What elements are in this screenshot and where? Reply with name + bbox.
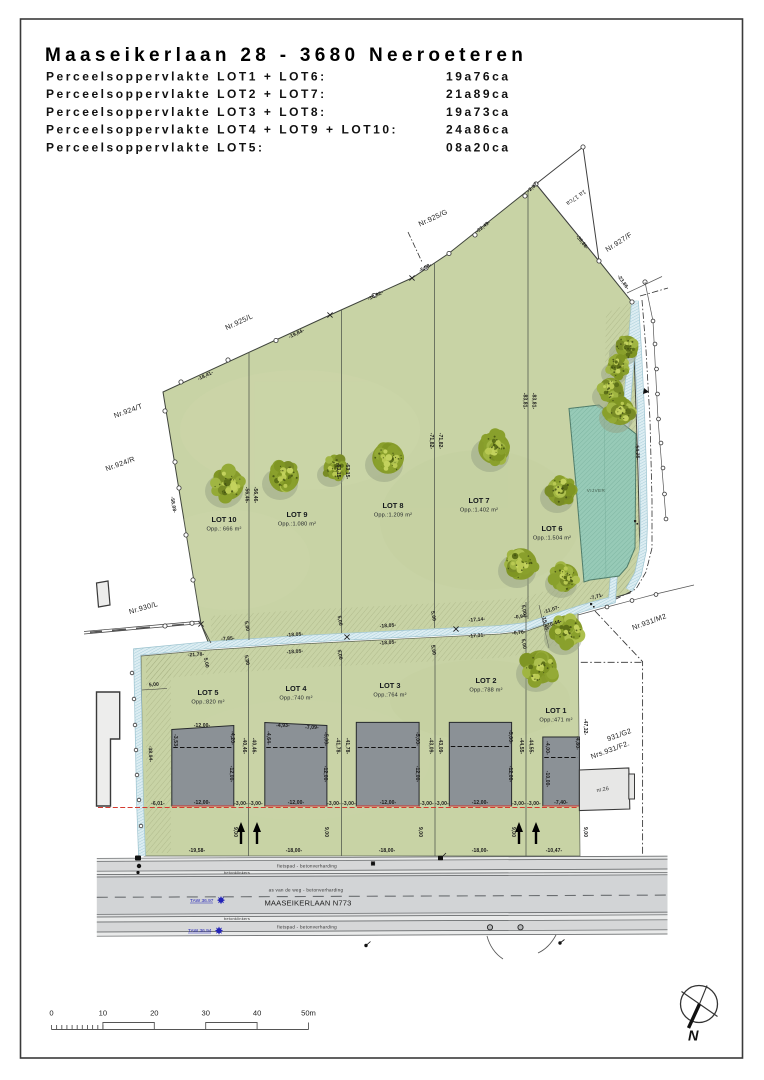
svg-text:-12,00-: -12,00-: [194, 800, 211, 806]
svg-text:-17,14-: -17,14-: [468, 616, 485, 623]
svg-text:LOT 4: LOT 4: [286, 684, 308, 693]
svg-text:-4,64-: -4,64-: [265, 731, 271, 745]
svg-text:-41,78-: -41,78-: [344, 738, 350, 755]
svg-text:Perceelsoppervlakte LOT2 + LOT: Perceelsoppervlakte LOT2 + LOT7:: [46, 87, 327, 101]
svg-text:-5,00-: -5,00-: [323, 732, 329, 746]
svg-text:-17,31-: -17,31-: [468, 632, 485, 639]
svg-text:-12,00-: -12,00-: [472, 800, 489, 806]
svg-text:-5,00-: -5,00-: [414, 732, 420, 746]
svg-text:-56,46-: -56,46-: [244, 487, 250, 504]
svg-text:Opp.:764 m²: Opp.:764 m²: [373, 692, 406, 698]
svg-text:5,00: 5,00: [149, 682, 160, 689]
svg-text:-3,00-: -3,00-: [512, 801, 526, 807]
svg-text:Opp.:1.080 m²: Opp.:1.080 m²: [278, 521, 316, 527]
svg-text:Perceelsoppervlakte LOT1 + LOT: Perceelsoppervlakte LOT1 + LOT6:: [46, 70, 327, 84]
svg-text:-6,01-: -6,01-: [151, 801, 165, 807]
svg-text:-18,05-: -18,05-: [379, 622, 396, 629]
svg-text:24a86ca: 24a86ca: [446, 123, 511, 137]
svg-text:-10,00-: -10,00-: [544, 771, 550, 788]
svg-text:-12,00-: -12,00-: [194, 723, 211, 729]
svg-text:Opp.: 666 m²: Opp.: 666 m²: [206, 526, 241, 532]
svg-text:08a20ca: 08a20ca: [446, 140, 511, 154]
svg-text:-7,85-: -7,85-: [221, 636, 235, 643]
svg-text:9,00: 9,00: [510, 827, 516, 837]
svg-text:-12,00-: -12,00-: [507, 766, 513, 783]
svg-text:LOT 2: LOT 2: [476, 676, 497, 685]
svg-text:N: N: [688, 1029, 699, 1045]
svg-text:-63,15-: -63,15-: [335, 463, 341, 480]
svg-text:VIJVER: VIJVER: [587, 488, 606, 493]
svg-text:-12,00-: -12,00-: [228, 766, 234, 783]
svg-text:Perceelsoppervlakte LOT4 + LOT: Perceelsoppervlakte LOT4 + LOT9 + LOT10:: [46, 123, 398, 137]
svg-text:-12,00-: -12,00-: [322, 766, 328, 783]
svg-text:20: 20: [150, 1009, 158, 1018]
svg-text:-3,00-: -3,00-: [527, 801, 541, 807]
svg-text:-3,00-: -3,00-: [435, 801, 449, 807]
svg-text:-43,09-: -43,09-: [428, 738, 434, 755]
svg-text:-40,46-: -40,46-: [251, 738, 257, 755]
svg-text:Opp.:740 m²: Opp.:740 m²: [279, 695, 312, 701]
svg-text:Opp.:471 m²: Opp.:471 m²: [539, 717, 572, 723]
svg-text:-47,32-: -47,32-: [582, 719, 588, 736]
svg-text:9,00: 9,00: [417, 827, 423, 837]
svg-text:LOT 10: LOT 10: [211, 515, 236, 524]
svg-text:LOT 9: LOT 9: [287, 510, 308, 519]
svg-text:-44,55-: -44,55-: [518, 738, 524, 755]
svg-text:-18,05-: -18,05-: [379, 639, 396, 646]
svg-text:-41,78-: -41,78-: [335, 738, 341, 755]
svg-text:-18,05-: -18,05-: [286, 631, 303, 638]
svg-text:Perceelsoppervlakte LOT3 + LOT: Perceelsoppervlakte LOT3 + LOT8:: [46, 105, 327, 119]
svg-text:-44,55-: -44,55-: [528, 738, 534, 755]
svg-text:Opp.:788 m²: Opp.:788 m²: [469, 687, 502, 693]
svg-text:9,00: 9,00: [323, 827, 329, 837]
svg-text:40: 40: [253, 1009, 261, 1018]
svg-text:-5,00-: -5,00-: [507, 730, 513, 744]
svg-text:-12,00-: -12,00-: [380, 800, 397, 806]
svg-text:betonklinkers: betonklinkers: [224, 870, 250, 875]
svg-text:-83,81-: -83,81-: [531, 393, 537, 410]
svg-text:-18,00-: -18,00-: [379, 848, 396, 854]
svg-text:-3,00-: -3,00-: [249, 801, 263, 807]
svg-text:Perceelsoppervlakte LOT5:: Perceelsoppervlakte LOT5:: [46, 140, 264, 154]
svg-text:Maaseikerlaan 28 - 3680 Neeroe: Maaseikerlaan 28 - 3680 Neeroeteren: [45, 45, 527, 66]
svg-text:-12,00-: -12,00-: [414, 766, 420, 783]
svg-text:LOT 5: LOT 5: [198, 688, 219, 697]
svg-text:LOT 1: LOT 1: [546, 706, 567, 715]
svg-text:-3,00-: -3,00-: [327, 801, 341, 807]
svg-text:betonklinkers: betonklinkers: [224, 916, 250, 921]
svg-text:Opp.:1.402 m²: Opp.:1.402 m²: [460, 507, 498, 513]
svg-text:as van de weg - betonverhardin: as van de weg - betonverharding: [269, 888, 344, 893]
svg-text:-7,40-: -7,40-: [554, 800, 568, 806]
svg-text:-56,46-: -56,46-: [252, 487, 258, 504]
svg-text:-71,82-: -71,82-: [437, 433, 443, 450]
svg-text:-19,58-: -19,58-: [189, 848, 206, 854]
svg-text:-18,00-: -18,00-: [286, 848, 303, 854]
svg-text:50m: 50m: [301, 1009, 316, 1018]
svg-text:-63,15-: -63,15-: [344, 463, 350, 480]
svg-text:fietspad - betonverharding: fietspad - betonverharding: [277, 863, 337, 868]
svg-text:-3,00-: -3,00-: [420, 801, 434, 807]
svg-text:-4,20-: -4,20-: [229, 731, 235, 745]
svg-text:0: 0: [49, 1009, 53, 1018]
svg-text:-3,53-: -3,53-: [172, 734, 178, 748]
svg-text:-4,80-: -4,80-: [574, 736, 580, 750]
svg-text:LOT 6: LOT 6: [542, 524, 563, 533]
svg-text:-7,09-: -7,09-: [305, 725, 319, 731]
svg-text:30: 30: [201, 1009, 209, 1018]
svg-text:-54,25-: -54,25-: [634, 444, 641, 461]
svg-text:LOT 3: LOT 3: [380, 681, 401, 690]
svg-text:-18,00-: -18,00-: [472, 848, 489, 854]
svg-text:-43,09-: -43,09-: [437, 738, 443, 755]
svg-text:21a89ca: 21a89ca: [446, 87, 511, 101]
svg-text:-83,81-: -83,81-: [522, 393, 528, 410]
svg-text:-12,00-: -12,00-: [288, 800, 305, 806]
svg-text:LOT 7: LOT 7: [469, 496, 490, 505]
svg-text:Opp.:1.209 m²: Opp.:1.209 m²: [374, 512, 412, 518]
svg-text:-3,00-: -3,00-: [234, 801, 248, 807]
svg-text:-10,47-: -10,47-: [546, 848, 563, 854]
svg-text:9,00: 9,00: [232, 827, 238, 837]
svg-text:-4,93-: -4,93-: [276, 723, 290, 729]
svg-text:-40,46-: -40,46-: [241, 738, 247, 755]
svg-text:-38,94-: -38,94-: [147, 746, 154, 763]
svg-text:19a73ca: 19a73ca: [446, 105, 511, 119]
svg-text:10: 10: [99, 1009, 107, 1018]
svg-text:Opp.:1.504 m²: Opp.:1.504 m²: [533, 535, 571, 541]
svg-text:9,00: 9,00: [582, 827, 588, 837]
svg-text:MAASEIKERLAAN N773: MAASEIKERLAAN N773: [264, 899, 351, 908]
svg-text:LOT 8: LOT 8: [383, 501, 404, 510]
svg-text:19a76ca: 19a76ca: [446, 70, 511, 84]
svg-text:-4,00-: -4,00-: [544, 741, 550, 755]
svg-text:Opp.:820 m²: Opp.:820 m²: [191, 699, 224, 705]
svg-text:-3,00-: -3,00-: [342, 801, 356, 807]
svg-text:-71,82-: -71,82-: [428, 433, 434, 450]
svg-text:-18,05-: -18,05-: [286, 648, 303, 655]
svg-text:fietspad - betonverharding: fietspad - betonverharding: [277, 925, 337, 930]
